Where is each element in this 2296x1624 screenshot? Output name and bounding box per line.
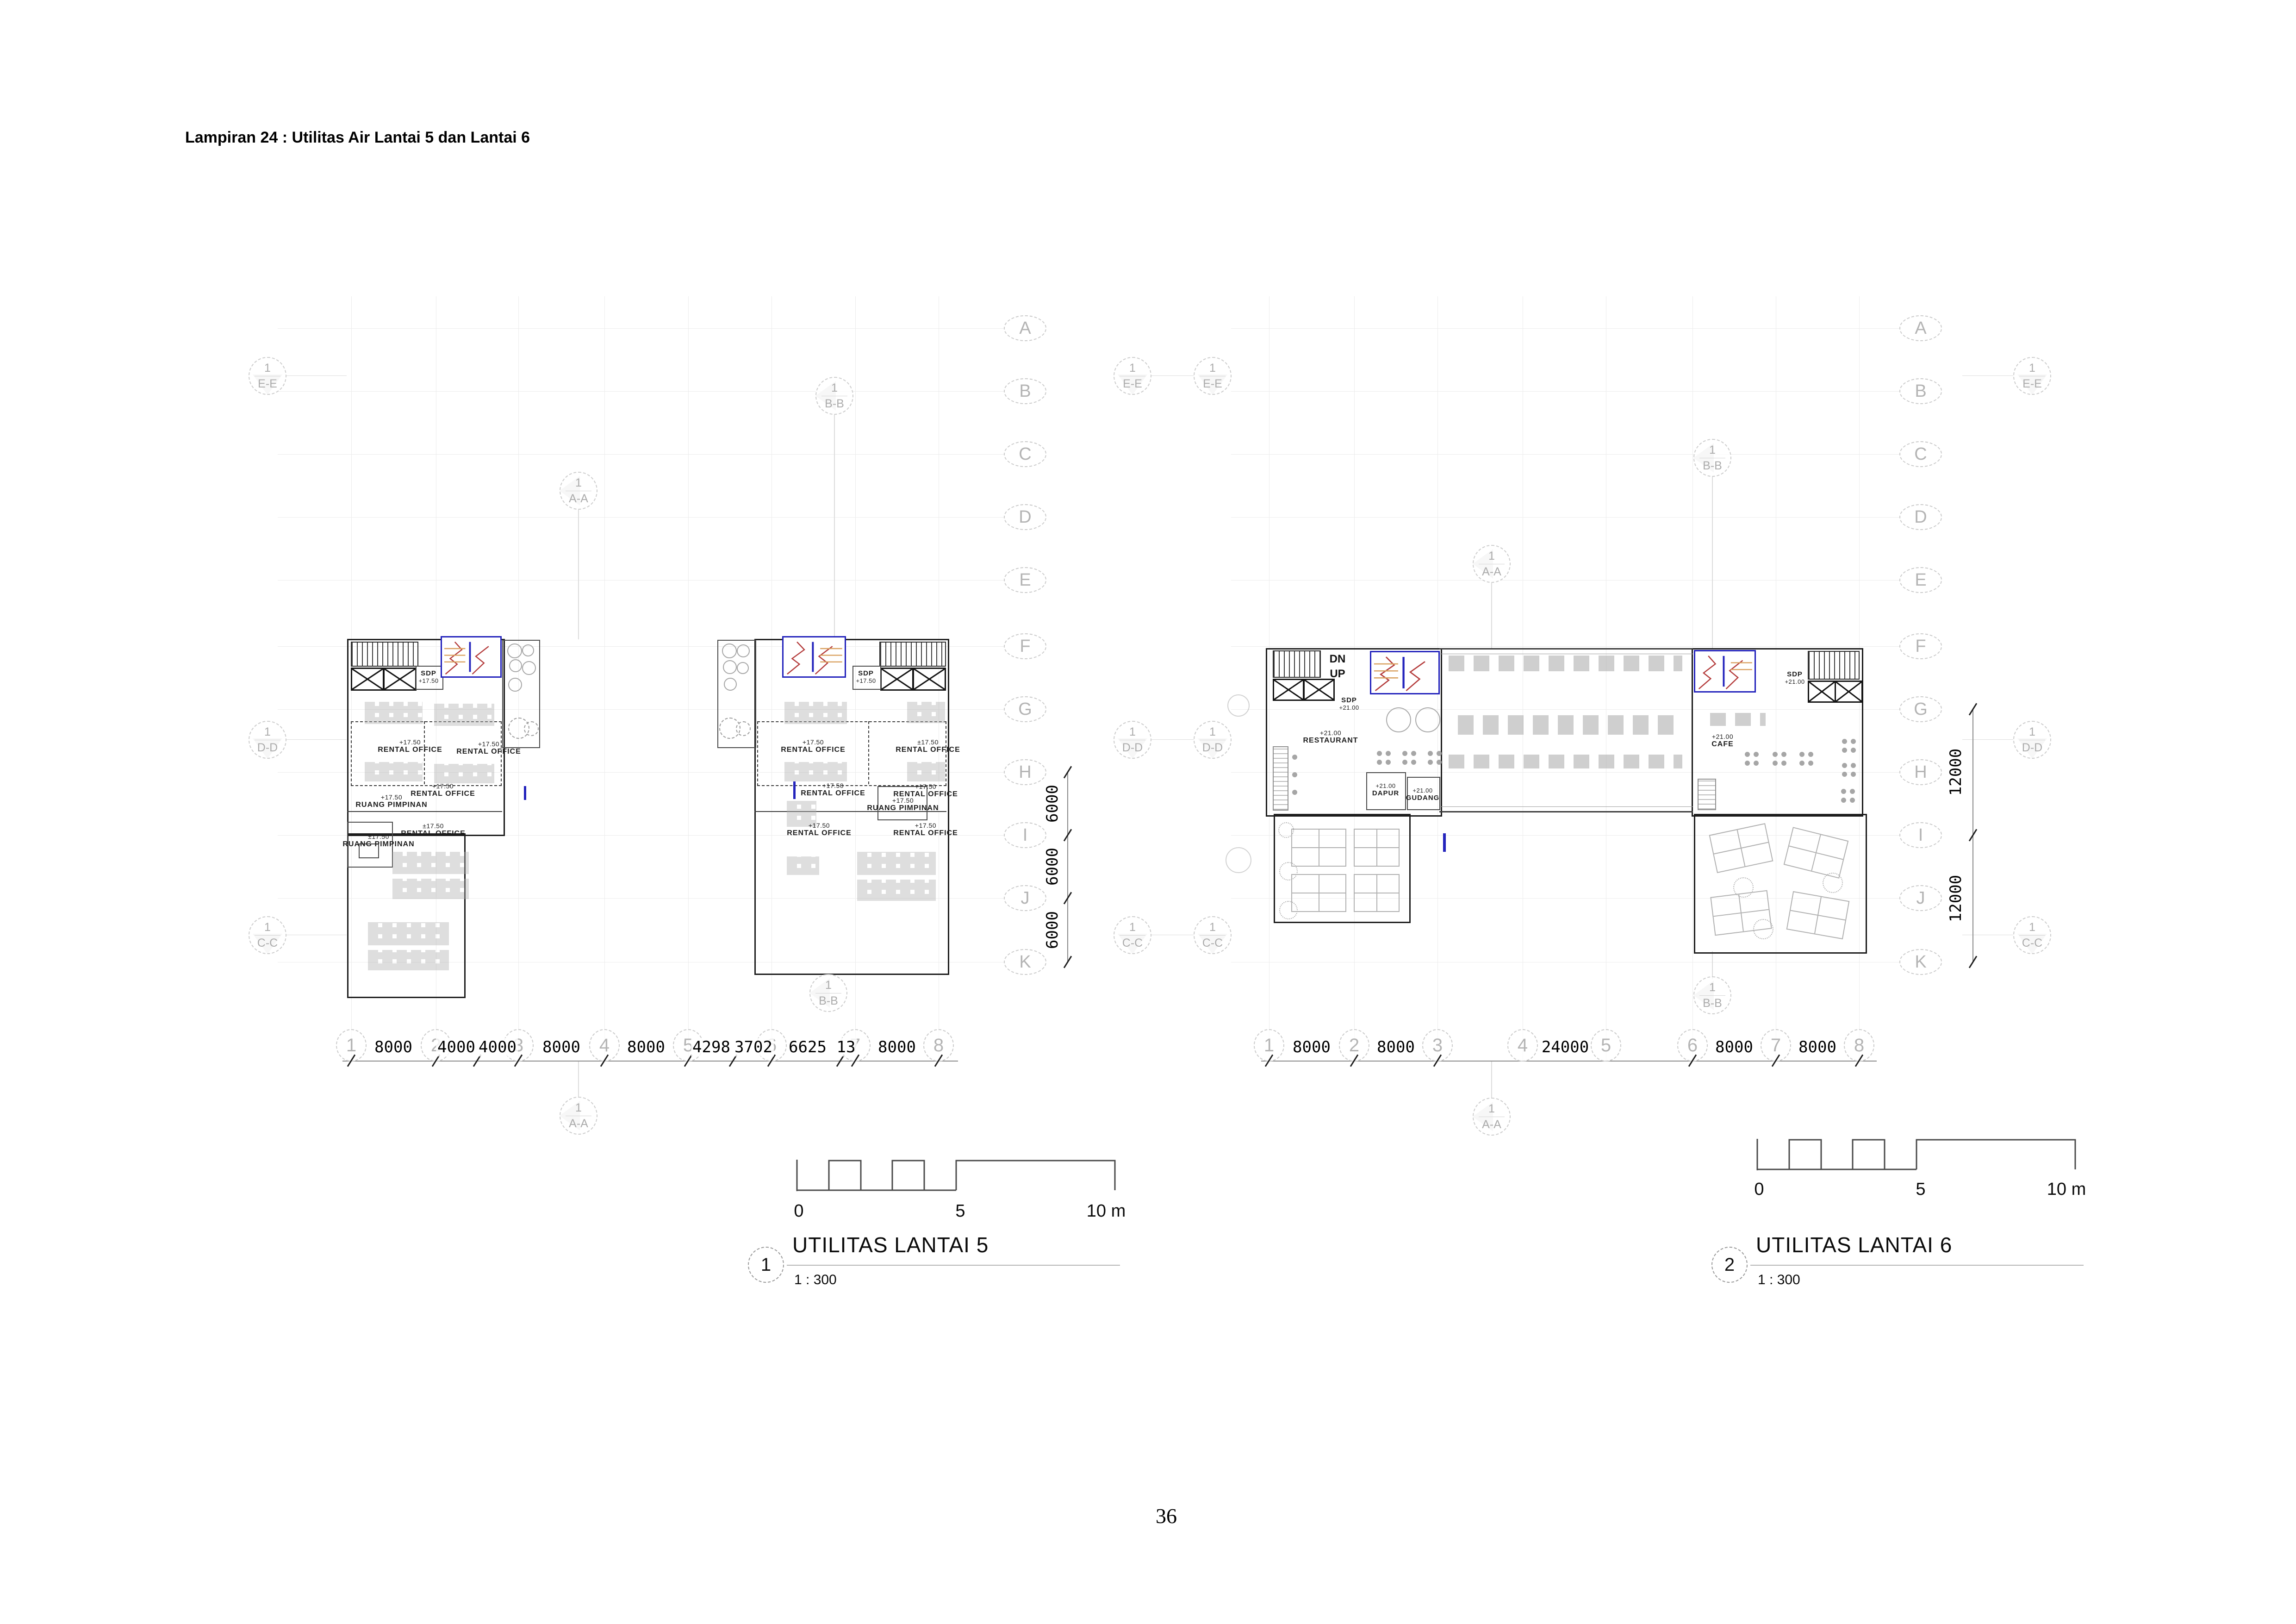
grid-letter: F (1899, 633, 1942, 659)
grid-number: 5 (1591, 1029, 1621, 1062)
plant-icon (1279, 862, 1298, 881)
section-tail (1962, 739, 2013, 740)
desk-cluster (392, 852, 469, 874)
section-tail (834, 415, 835, 639)
stool-icon (1292, 790, 1297, 795)
view-title-underline (787, 1265, 1120, 1266)
tree-icon (508, 678, 522, 692)
grid-letter: D (1004, 504, 1046, 530)
scale-bar-label: 5 (955, 1201, 965, 1221)
grid-letter: B (1004, 378, 1046, 404)
grid-letter: E (1899, 567, 1942, 593)
dim-label: 6625 (787, 1038, 828, 1056)
section-marker-bb: 1B-B (809, 974, 847, 1012)
water-piping (784, 637, 845, 676)
section-tail (1151, 739, 1194, 740)
elevator-shaft (1273, 679, 1304, 701)
dim-label: 6000 (1043, 910, 1062, 950)
grid-letter: K (1899, 949, 1942, 975)
section-tail (286, 935, 347, 935)
dim-label: 6000 (1043, 846, 1062, 887)
partition-wall (347, 811, 502, 812)
long-table (1710, 713, 1766, 726)
dim-label: 8000 (1797, 1038, 1838, 1056)
grid-line-h (1231, 580, 1901, 581)
view-title: UTILITAS LANTAI 6 (1756, 1232, 1952, 1257)
stairs (879, 642, 946, 667)
section-tail (1962, 935, 2013, 935)
room-label: +17.50RUANG PIMPINAN (867, 797, 939, 812)
room-label-sdp: SDP+17.50 (856, 669, 876, 684)
section-tail (1712, 477, 1713, 648)
corridor-wall (1439, 648, 1693, 650)
drawing-sheet: Lampiran 24 : Utilitas Air Lantai 5 dan … (0, 0, 2296, 1624)
stool-icon (1292, 772, 1297, 777)
tree-icon (1226, 847, 1251, 873)
elevator-shaft (351, 668, 384, 691)
room-label: +21.00CAFE (1711, 733, 1734, 749)
corridor-line (1439, 654, 1693, 654)
dim-label: 8000 (1714, 1038, 1755, 1056)
grid-number: 1 (336, 1029, 367, 1062)
room-label: +17.50RENTAL OFFICE (781, 738, 846, 754)
round-table (1415, 707, 1440, 732)
tree-icon (507, 643, 522, 658)
cafe-counter (1698, 779, 1716, 810)
grid-letter: I (1004, 822, 1046, 848)
section-marker-cc: 1C-C (249, 916, 286, 954)
stairs (1273, 650, 1321, 678)
grid-letter: H (1899, 759, 1942, 785)
dim-label: 8000 (541, 1038, 582, 1056)
desk-cluster (392, 879, 469, 899)
dim-label: 8000 (373, 1038, 414, 1056)
toilet-block (441, 636, 502, 678)
grid-line-h (278, 517, 1004, 518)
grid-number: 3 (1422, 1029, 1453, 1062)
tree-icon (524, 721, 539, 736)
dim-label: 24000 (1540, 1038, 1590, 1056)
grid-letter: D (1899, 504, 1942, 530)
desk-cluster (434, 704, 494, 726)
section-marker-cc: 1C-C (2013, 916, 2051, 954)
scale-bar (796, 1155, 1116, 1193)
scale-bar-label: 10 m (2047, 1180, 2086, 1199)
desk-cluster (368, 950, 449, 970)
tree-icon (522, 661, 536, 675)
room-label: +21.00GUDANG (1406, 787, 1440, 802)
grid-line-h (1231, 646, 1901, 647)
room-label-sdp: SDP+21.00 (1785, 670, 1804, 685)
grid-number: 8 (1844, 1029, 1874, 1062)
grid-letter: A (1899, 315, 1942, 341)
terrace-table (1354, 829, 1400, 867)
grid-letter: J (1004, 885, 1046, 911)
grid-letter: H (1004, 759, 1046, 785)
terrace-table (1354, 874, 1400, 912)
dim-label: 3702 (733, 1038, 774, 1056)
room-label: +17.50RUANG PIMPINAN (355, 793, 427, 809)
grid-line-h (1231, 391, 1901, 392)
grid-number: 4 (589, 1029, 620, 1062)
grid-letter: J (1899, 885, 1942, 911)
grid-line-h (278, 580, 1004, 581)
elevator-shaft (1808, 681, 1836, 703)
grid-line-h (278, 328, 1004, 329)
scale-bar-label: 0 (1754, 1180, 1764, 1199)
dim-label: 13 (835, 1038, 857, 1056)
section-tail (1962, 375, 2013, 376)
room-label: +17.50RENTAL OFFICE (893, 783, 958, 799)
grid-line-h (1231, 962, 1901, 962)
table-chairs (1841, 789, 1846, 794)
grid-letter: G (1004, 696, 1046, 722)
desk-cluster (784, 702, 847, 724)
table-chairs (1377, 751, 1382, 756)
section-marker-aa: 1A-A (560, 472, 597, 510)
section-marker-cc: 1C-C (1114, 916, 1151, 954)
grid-line-h (1231, 328, 1901, 329)
corridor-wall (1439, 811, 1693, 812)
room-label: +17.50RENTAL OFFICE (378, 738, 442, 754)
section-marker-bb: 1B-B (1693, 439, 1731, 477)
grid-number: 6 (1677, 1029, 1708, 1062)
room-label: +21.00RESTAURANT (1303, 729, 1358, 745)
riser-mark (793, 781, 796, 799)
tree-icon (509, 659, 522, 672)
tree-icon (736, 721, 751, 736)
dim-label: 12000 (1947, 747, 1965, 797)
grid-letter: G (1899, 696, 1942, 722)
partition-dashed (868, 721, 869, 784)
table-chairs (1842, 739, 1847, 744)
section-tail (1491, 583, 1492, 648)
section-marker-aa: 1A-A (560, 1097, 597, 1135)
dim-label: 4000 (436, 1038, 477, 1056)
room-label-sdp: SDP+21.00 (1339, 696, 1359, 711)
table-chairs (1402, 751, 1407, 756)
water-piping (1371, 652, 1438, 693)
planter-row (1449, 755, 1682, 768)
section-marker-dd: 1D-D (2013, 721, 2051, 759)
table-chairs (1745, 752, 1750, 757)
room-label: +17.50RENTAL OFFICE (787, 822, 852, 837)
table-chairs (1842, 763, 1847, 768)
section-marker-ee: 1E-E (1114, 357, 1151, 395)
desk-cluster (365, 762, 423, 781)
view-number: 2 (1711, 1247, 1748, 1283)
planter-row (1458, 715, 1682, 735)
table-chairs (1428, 751, 1433, 756)
tree-icon (724, 678, 737, 691)
water-piping (1695, 651, 1755, 691)
plant-icon (1753, 919, 1773, 939)
tree-icon (1227, 694, 1250, 717)
view-number: 1 (748, 1247, 784, 1283)
section-marker-bb: 1B-B (815, 377, 853, 415)
section-tail (578, 510, 579, 639)
view-scale: 1 : 300 (1758, 1272, 1800, 1288)
table-chairs (1773, 752, 1778, 757)
section-marker-ee: 1E-E (1194, 357, 1232, 395)
view-scale: 1 : 300 (794, 1272, 837, 1288)
plant-icon (1279, 901, 1298, 919)
plant-icon (1278, 822, 1294, 838)
section-tail (286, 375, 347, 376)
section-marker-ee: 1E-E (249, 357, 286, 395)
elevator-shaft (880, 668, 914, 691)
dim-label: 4298 (691, 1038, 732, 1056)
grid-line-v (688, 296, 689, 1060)
toilet-block (1694, 650, 1756, 693)
grid-line-v (1606, 296, 1606, 1060)
dim-label: 8000 (877, 1038, 917, 1056)
section-tail (578, 1061, 579, 1097)
dim-label: 8000 (626, 1038, 666, 1056)
dim-label: 4000 (477, 1038, 518, 1056)
table-chairs (1799, 752, 1804, 757)
stair-direction-label: DN (1330, 653, 1346, 666)
room-label: ±17.50RUANG PIMPINAN (342, 833, 414, 849)
dimension-line (1067, 772, 1068, 962)
dim-label: 12000 (1947, 874, 1965, 924)
stair-direction-label: UP (1330, 668, 1345, 681)
section-marker-dd: 1D-D (249, 721, 286, 759)
dim-label: 8000 (1375, 1038, 1416, 1056)
elevator-shaft (1835, 681, 1863, 703)
plant-icon (1733, 877, 1754, 898)
terrace-table (1291, 874, 1346, 912)
view-title: UTILITAS LANTAI 5 (792, 1232, 989, 1257)
tree-icon (737, 662, 749, 674)
tree-icon (522, 644, 534, 656)
grid-number: 4 (1507, 1029, 1538, 1062)
section-marker-ee: 1E-E (2013, 357, 2051, 395)
grid-letter: C (1899, 441, 1942, 467)
scale-bar (1756, 1134, 2077, 1172)
stairs (1808, 651, 1860, 680)
desk-cluster (857, 880, 936, 901)
grid-line-h (1231, 517, 1901, 518)
section-marker-aa: 1A-A (1473, 545, 1511, 583)
tree-icon (723, 660, 737, 674)
desk-cluster (787, 856, 819, 875)
section-tail (1491, 1061, 1492, 1098)
corridor-line (1439, 806, 1693, 807)
grid-line-h (1231, 454, 1901, 455)
section-tail (1151, 935, 1194, 935)
grid-letter: C (1004, 441, 1046, 467)
elevator-shaft (913, 668, 946, 691)
grid-letter: F (1004, 633, 1046, 659)
dim-label: 8000 (1291, 1038, 1332, 1056)
section-tail (1151, 375, 1194, 376)
view-title-underline (1750, 1265, 2084, 1266)
room-label: +17.50RENTAL OFFICE (456, 740, 521, 756)
water-piping (442, 637, 500, 676)
desk-cluster (365, 702, 423, 724)
scale-bar-label: 0 (794, 1201, 803, 1221)
dim-label: 6000 (1043, 783, 1062, 824)
room-label: +17.50RENTAL OFFICE (801, 782, 865, 798)
stool-icon (1292, 755, 1297, 760)
grid-line-v (1523, 296, 1523, 1060)
round-table (1386, 707, 1411, 732)
tree-icon (737, 644, 750, 657)
room-label: +21.00DAPUR (1372, 782, 1399, 797)
page-title: Lampiran 24 : Utilitas Air Lantai 5 dan … (185, 129, 530, 147)
desk-cluster (434, 764, 494, 783)
grid-number: 7 (1761, 1029, 1791, 1062)
grid-letter: B (1899, 378, 1942, 404)
section-marker-dd: 1D-D (1194, 721, 1232, 759)
scale-bar-label: 10 m (1087, 1201, 1126, 1221)
scale-bar-label: 5 (1916, 1180, 1925, 1199)
grid-letter: A (1004, 315, 1046, 341)
elevator-shaft (383, 668, 417, 691)
desk-cluster (907, 762, 945, 781)
section-marker-dd: 1D-D (1114, 721, 1151, 759)
plant-icon (1823, 873, 1843, 893)
grid-number: 2 (1339, 1029, 1369, 1062)
desk-cluster (784, 762, 847, 781)
desk-cluster (857, 852, 936, 875)
grid-letter: E (1004, 567, 1046, 593)
riser-mark (1443, 833, 1446, 852)
grid-letter: K (1004, 949, 1046, 975)
riser-mark (524, 786, 526, 800)
tree-icon (722, 643, 737, 658)
section-tail (286, 739, 347, 740)
room-label: ±17.50RENTAL OFFICE (896, 738, 960, 754)
page-number: 36 (1156, 1504, 1177, 1528)
grid-line-v (604, 296, 605, 1060)
grid-line-h (278, 391, 1004, 392)
planter-row (1449, 656, 1682, 671)
stairs (351, 642, 418, 667)
bar-counter (1273, 746, 1288, 811)
room-label: +17.50RENTAL OFFICE (893, 822, 958, 837)
section-marker-cc: 1C-C (1194, 916, 1232, 954)
toilet-block (782, 636, 846, 678)
desk-cluster (368, 922, 449, 945)
grid-line-h (278, 454, 1004, 455)
elevator-shaft (1303, 679, 1335, 701)
grid-letter: I (1899, 822, 1942, 848)
section-marker-aa: 1A-A (1473, 1098, 1511, 1136)
section-tail (1712, 951, 1713, 979)
terrace-table (1291, 829, 1346, 867)
grid-number: 1 (1254, 1029, 1284, 1062)
grid-number: 8 (923, 1029, 954, 1062)
room-label-sdp: SDP+17.50 (418, 669, 438, 684)
toilet-block (1370, 651, 1440, 694)
desk-cluster (907, 702, 945, 723)
section-marker-bb: 1B-B (1693, 976, 1731, 1014)
